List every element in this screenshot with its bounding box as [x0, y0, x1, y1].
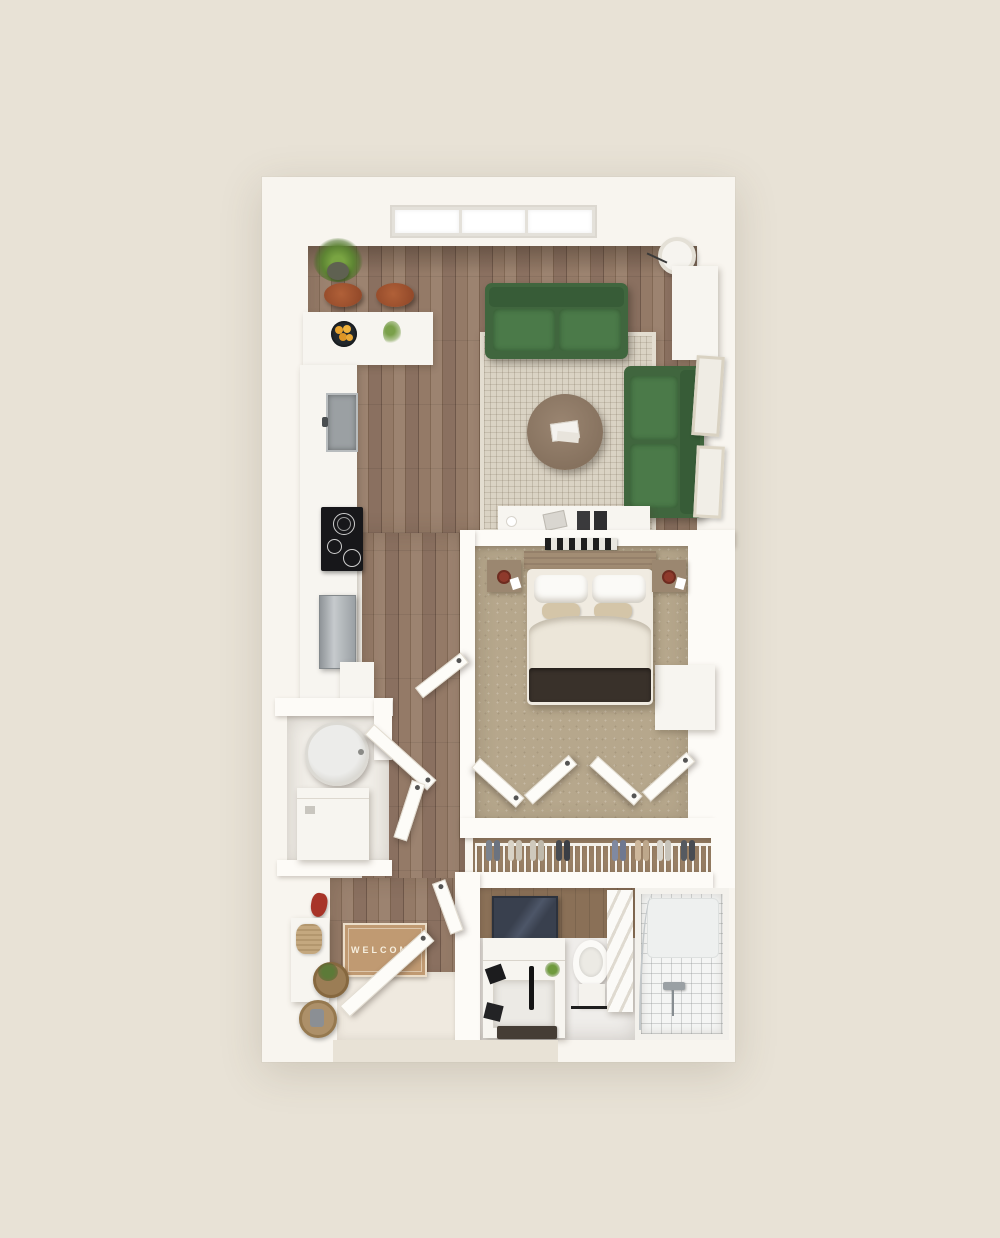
basket-plant — [318, 963, 338, 981]
umbrella-item — [310, 1009, 324, 1027]
picture-frame — [691, 355, 725, 437]
toilet — [573, 940, 609, 986]
vanity-sink — [493, 980, 555, 1028]
green-loveseat — [624, 366, 704, 518]
shoe-pair — [681, 840, 695, 861]
flower-sprig — [383, 321, 401, 345]
double-bed — [527, 569, 653, 705]
shoe-pair — [530, 840, 544, 861]
shoe-pair — [612, 840, 626, 861]
bar-stool — [376, 283, 414, 307]
table-books — [557, 431, 580, 443]
wood-headboard — [524, 551, 656, 569]
candle — [662, 570, 676, 584]
red-coat-hook — [309, 892, 329, 918]
bathroom-vanity — [483, 938, 565, 1038]
green-sofa — [485, 283, 628, 359]
vanity-mirror — [492, 896, 558, 942]
kitchen-sink — [326, 393, 358, 452]
tub-drain-line — [672, 990, 674, 1016]
candle — [497, 570, 511, 584]
wood-floor-top-shadow — [308, 246, 697, 274]
bath-mat — [497, 1026, 557, 1039]
bathtub-shower — [635, 888, 729, 1040]
stainless-appliance — [319, 595, 356, 669]
toilet-base — [579, 984, 605, 1006]
storage-basket — [299, 1000, 337, 1038]
sink-faucet — [322, 417, 328, 427]
side-cabinet — [672, 266, 718, 360]
window-pane — [462, 210, 526, 233]
exterior-notch — [333, 1040, 558, 1062]
laundry-bottom-wall — [277, 860, 392, 876]
throw-blanket — [529, 668, 651, 702]
built-in-wardrobe — [655, 665, 715, 730]
washing-machine-round — [305, 722, 369, 786]
headboard-art — [545, 538, 617, 550]
burner — [327, 539, 342, 554]
shoe-pair — [556, 840, 570, 861]
window-pane — [395, 210, 459, 233]
burner — [343, 549, 361, 567]
shoe-pair — [486, 840, 500, 861]
picture-frame — [693, 445, 725, 518]
pillow — [592, 575, 646, 603]
round-coffee-table — [527, 394, 603, 470]
console-magazine — [542, 510, 567, 531]
shoe-pair — [657, 840, 671, 861]
woven-bag — [296, 924, 322, 954]
cooktop — [321, 507, 363, 571]
vanity-faucet — [529, 966, 534, 1010]
shoe-pair — [508, 840, 522, 861]
burner — [337, 517, 351, 531]
nightstand — [487, 560, 521, 592]
plant-pot — [327, 262, 349, 280]
towel-shelf — [607, 890, 633, 1012]
triple-window — [390, 205, 597, 238]
tub-faucet — [663, 982, 685, 990]
pillow — [534, 575, 588, 603]
dryer-unit — [297, 788, 369, 860]
shower-glass-panel — [639, 894, 653, 1030]
closet-bathroom-wall — [460, 872, 713, 888]
bedroom-left-wall — [460, 530, 475, 835]
fruit-bowl — [331, 321, 357, 347]
notepad — [675, 577, 687, 590]
bar-stool — [324, 283, 362, 307]
floor-plan-render: WELCOME — [0, 0, 1000, 1238]
entry-bathroom-wall — [455, 872, 480, 1040]
window-pane — [528, 210, 592, 233]
vanity-plant — [545, 962, 560, 977]
shoe-pair — [635, 840, 649, 861]
console-cup — [506, 516, 517, 527]
closet-right-wall — [711, 818, 735, 888]
plant-basket — [313, 962, 349, 998]
nightstand — [652, 560, 686, 592]
peninsula-counter — [303, 312, 433, 365]
bedroom-closet-wall — [460, 818, 713, 838]
apartment-plan: WELCOME — [262, 177, 735, 1062]
notepad — [510, 577, 522, 590]
tub-basin — [647, 898, 719, 958]
